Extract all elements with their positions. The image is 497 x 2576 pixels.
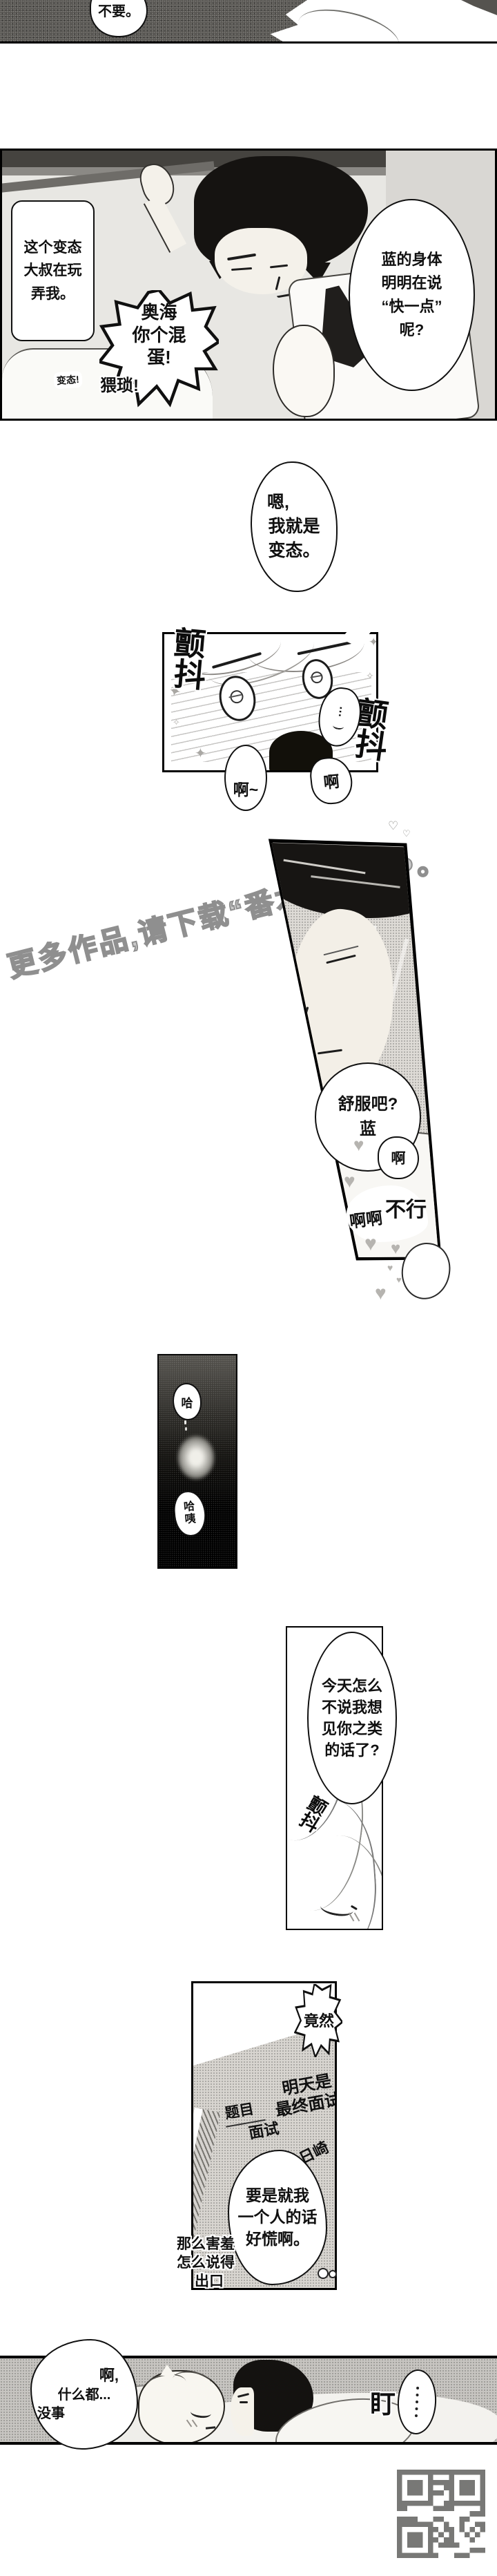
gasp-text: 哈 [182,1393,193,1411]
gasp-bubble-top: 哈 [173,1383,202,1420]
thought-line: 弄我。 [31,283,75,306]
heart-icon: ♥ [353,1136,364,1154]
speech-line: 明明在说 [381,271,442,295]
speech-line: “快一点” [381,295,442,318]
speech-line: 什么都... [58,2386,111,2405]
gasp-line: 咦 [184,1513,197,1527]
shout-line: 蛋! [147,346,171,369]
arm [144,195,186,253]
speech-line: 啊, [99,2365,137,2386]
sfx-char: 抖 [353,729,389,764]
sparkle-icon: ✧ [173,717,180,728]
speech-line: 今天怎么 [322,1675,382,1697]
moan-ahah: 啊啊 [348,1204,384,1232]
manga-page: 更多作品,请下载“番木瓜”APP。 不要。 这个变态 大叔在玩 弄我。 [0,0,497,2576]
bubble-text: 啊 [322,768,340,793]
aside-line: 那么害羞 [177,2235,235,2254]
confession-bubble: 嗯, 我就是 变态。 [251,461,338,592]
thought-line: 要是就我 [246,2185,309,2206]
shout-biantai: 变态! [56,374,79,386]
listener-head [273,325,335,417]
sparkle-icon: ✧ [366,670,374,682]
burst-text: 竟然 [304,2009,334,2031]
speech-line: 的话了? [324,1739,379,1761]
sparkle-icon: ✦ [369,636,378,649]
speech-line: 没事 [32,2405,65,2423]
moan-bubble-ah: 啊 [378,1136,419,1179]
shout-weisuo: 猥琐! [100,372,139,396]
thought-line: 这个变态 [24,236,82,260]
confession-line: 我就是 [268,515,320,539]
sfx-char: 抖 [173,658,207,692]
heart-icon: ♥ [387,1263,393,1272]
dot [416,2394,418,2396]
dot [416,2387,419,2389]
stone-texture [0,0,307,41]
dot [415,2414,418,2417]
speech-line: 呢? [400,318,424,342]
shout-biantai-tag: 变态! [53,371,82,390]
heart-icon: ♥ [375,1284,387,1303]
sfx-stare: 盯 [370,2383,396,2421]
speech-line: 不说我想 [322,1697,382,1718]
shout-line: 你个混 [132,324,186,347]
panel-dark: 哈 哈 咦 [157,1354,237,1569]
heart-icon: ♥ [391,1241,400,1257]
stone-texture-corner [461,0,497,15]
sfx-tremble-1: 颤 抖 [167,627,210,693]
moan-no: 不行 [385,1192,427,1223]
heart-icon: ♥ [364,1234,377,1254]
bubble-text: 啊~ [233,776,258,800]
bubble-ah-long: 啊~ [224,745,267,811]
gasp-line: 哈 [183,1500,195,1514]
closed-eye [190,2406,211,2418]
blush-line [192,2420,198,2427]
sparkle-icon: ✦ [195,745,206,762]
confession-line: 嗯, [252,490,289,515]
gasp-bubble-bottom: 哈 咦 [172,1489,208,1538]
heart-icon: ♥ [396,1275,402,1284]
dot [416,2401,418,2403]
thought-bubble-left: 这个变态 大叔在玩 弄我。 [11,200,95,341]
speech-bubble-why: 今天怎么 不说我想 见你之类 的话了? [307,1632,397,1804]
speech-line: 见你之类 [322,1718,382,1739]
heart-icon: ♥ [344,1172,355,1191]
burst-bubble: 竟然 [294,1984,342,2057]
man-eye [240,2401,248,2403]
aside-line: 怎么说得 [177,2254,235,2273]
speech-line: 蓝的身体 [381,248,442,271]
thought-line: 大叔在玩 [24,259,82,283]
moan-text: 啊 [391,1147,406,1168]
dots-text: ⋯ [333,705,348,718]
blush-line [186,2420,193,2427]
shoulder-line [293,1,405,44]
confession-line: 变态。 [268,539,320,563]
bubble-text: 不要。 [98,0,139,20]
thought-line: 一个人的话 [238,2206,318,2228]
qr-code [397,2470,485,2558]
panel-top: 不要。 [0,0,497,44]
thought-line: 好慌啊。 [246,2229,309,2250]
aside-text: 那么害羞 怎么说得 出口 [177,2235,235,2291]
thought-trail-circle [318,2268,329,2279]
fuzzy-glow [177,1435,215,1480]
mouth-curve [333,722,344,730]
speech-bubble-nothing: 啊, 什么都... 没事 [30,2339,138,2450]
aside-line: 出口 [177,2273,235,2291]
mouth-line [206,2426,215,2429]
trail-dot [185,1427,187,1431]
speech-line: 舒服吧? [338,1092,398,1117]
hair-spike [160,2365,175,2376]
dot [415,2407,418,2410]
heart-outline-icon: ♡ [388,819,398,833]
trail-dot [184,1420,186,1424]
speech-bubble-right: 蓝的身体 明明在说 “快一点” 呢? [349,199,475,391]
thought-trail-circle [329,2270,337,2278]
shout-line: 奥海 [141,301,177,324]
